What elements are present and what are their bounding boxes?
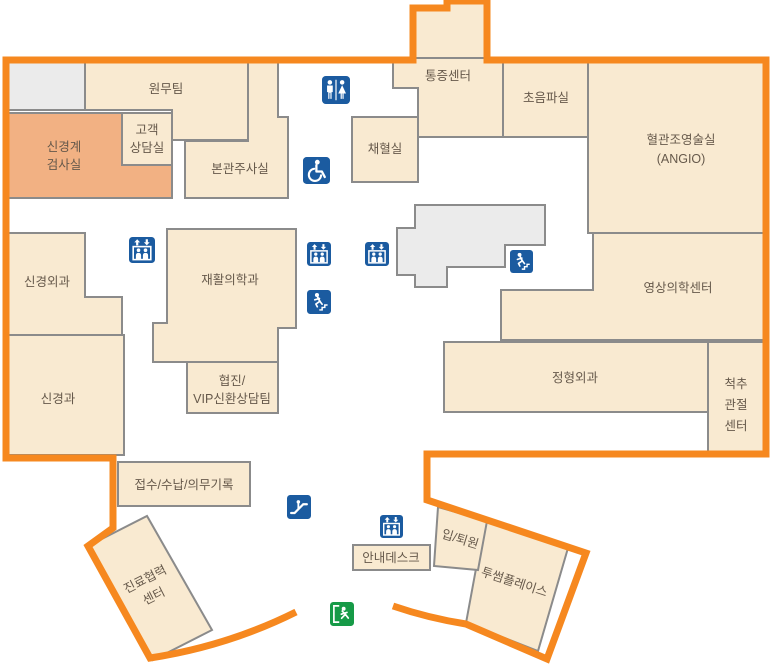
elevator-icon-lobby: [380, 515, 403, 538]
label-customer-consult-line1: 고객: [135, 123, 158, 137]
label-information-desk: 안내데스크: [362, 551, 420, 565]
elevator-icon-center-left: [307, 242, 331, 266]
label-ultrasound: 초음파실: [523, 91, 569, 105]
stairs-icon-center: [307, 290, 331, 314]
label-neuro-exam-line1: 신경계: [47, 140, 82, 154]
label-imaging-center: 영상의학센터: [643, 281, 712, 295]
label-administration-office: 원무팀: [149, 82, 184, 96]
floor-plan-stage: 원무팀 신경계 검사실 고객 상담실 본관주사실 채혈실 통증센터 초음파실 혈…: [0, 0, 772, 670]
wheelchair-icon: [303, 157, 330, 184]
label-pain-center: 통증센터: [425, 69, 471, 83]
escalator-icon: [287, 495, 311, 519]
restroom-icon: [322, 76, 350, 104]
label-spine-line1: 척추: [724, 377, 747, 391]
label-angio-line2: (ANGIO): [657, 152, 706, 166]
elevator-icon-west: [129, 237, 155, 263]
elevator-icon-center-right: [365, 242, 389, 266]
stairwell-area: [397, 205, 545, 287]
label-neurology: 신경과: [41, 392, 76, 406]
label-customer-consult-line2: 상담실: [130, 141, 165, 155]
label-spine-line3: 센터: [724, 419, 747, 433]
label-orthopedics: 정형외과: [552, 371, 599, 385]
label-neurosurgery: 신경외과: [24, 275, 71, 289]
stairs-icon-east: [510, 250, 533, 273]
hospital-floor-map: 원무팀 신경계 검사실 고객 상담실 본관주사실 채혈실 통증센터 초음파실 혈…: [0, 0, 772, 670]
label-injection-room: 본관주사실: [211, 162, 269, 176]
room-unlabeled-gray: [6, 60, 85, 110]
exit-icon: [330, 602, 354, 626]
room-customer-consult-room: [122, 113, 172, 165]
label-vip-line1: 협진/: [219, 374, 246, 388]
room-rehabilitation: [153, 229, 296, 362]
room-care-coordination-center: [88, 516, 212, 660]
label-reception-records: 접수/수납/의무기록: [135, 478, 234, 492]
label-neuro-exam-line2: 검사실: [47, 158, 82, 172]
label-blood-collection: 채혈실: [368, 142, 403, 156]
label-rehabilitation: 재활의학과: [201, 273, 259, 287]
label-angio-line1: 혈관조영술실: [646, 133, 715, 147]
label-vip-line2: VIP신환상담팀: [193, 392, 271, 406]
label-spine-line2: 관절: [724, 398, 747, 412]
room-imaging-center: [501, 233, 765, 340]
